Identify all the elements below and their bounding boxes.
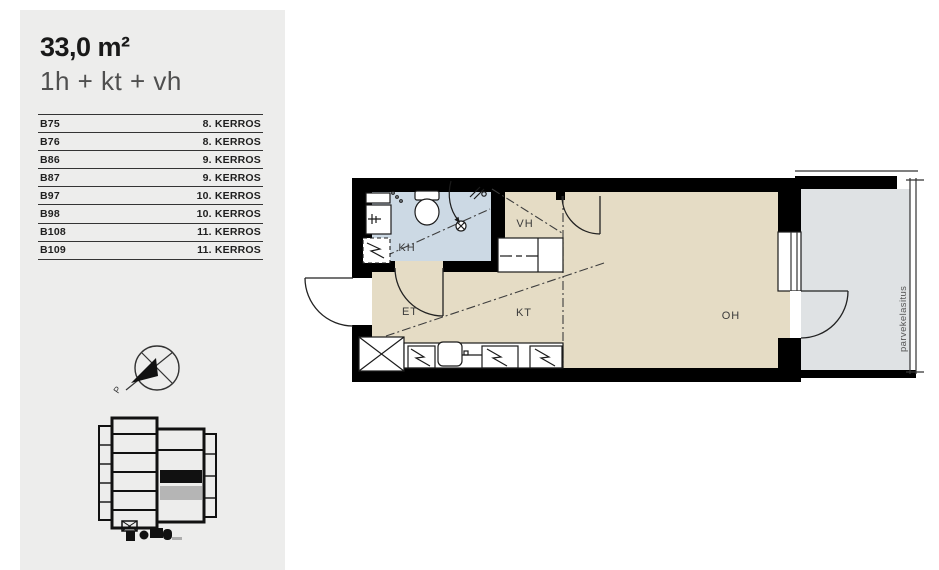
table-row: B768. KERROS [38,133,263,151]
table-row: B10911. KERROS [38,242,263,260]
apartment-floor: 9. KERROS [203,154,263,166]
highlighted-apartment-floor [160,470,202,483]
building-outline [99,418,216,541]
label-entry: ET [402,306,418,318]
apartment-id: B97 [38,190,60,202]
label-balcony-glazing: parvekelasitus [898,286,909,352]
building-location-icon [92,400,222,555]
apartment-floor: 8. KERROS [203,136,263,148]
table-row: B9710. KERROS [38,187,263,205]
apartment-id: B86 [38,154,60,166]
table-row: B9810. KERROS [38,205,263,223]
kitchen-sink [438,342,462,366]
entrance-door [305,278,353,326]
area-title: 33,0 m² [40,32,285,63]
closet-cabinet [498,238,563,272]
table-row: B879. KERROS [38,169,263,187]
info-panel: 33,0 m² 1h + kt + vh B758. KERROSB768. K… [20,10,285,570]
label-closet: VH [516,218,533,230]
toilet-bowl [415,199,439,225]
apartment-id: B75 [38,118,60,130]
shelf [366,193,390,203]
apartment-id: B76 [38,136,60,148]
apartment-id: B109 [38,244,66,256]
apartment-floor: 10. KERROS [197,190,263,202]
room-configuration: 1h + kt + vh [40,66,285,97]
table-row: B758. KERROS [38,115,263,133]
apartment-id: B98 [38,208,60,220]
apartment-floor: 9. KERROS [203,172,263,184]
balcony-floor [801,189,910,370]
floor-plan: KH VH ET KT OH parvekelasitus [290,150,939,410]
apartment-table: B758. KERROSB768. KERROSB869. KERROSB879… [38,114,263,260]
north-compass-icon: P [110,328,200,400]
table-row: B10811. KERROS [38,224,263,242]
label-bathroom: KH [398,242,415,254]
apartment-floor: 11. KERROS [197,244,263,256]
table-row: B869. KERROS [38,151,263,169]
label-living-room: OH [722,310,741,322]
label-kitchen: KT [516,307,532,319]
apartment-id: B108 [38,226,66,238]
apartment-floor: 11. KERROS [197,226,263,238]
washer-reservation [363,238,390,263]
compass-graphic: P [111,346,179,395]
apartment-id: B87 [38,172,60,184]
apartment-floor: 8. KERROS [203,118,263,130]
apartment-floor: 10. KERROS [197,208,263,220]
compass-north-letter: P [111,384,123,395]
